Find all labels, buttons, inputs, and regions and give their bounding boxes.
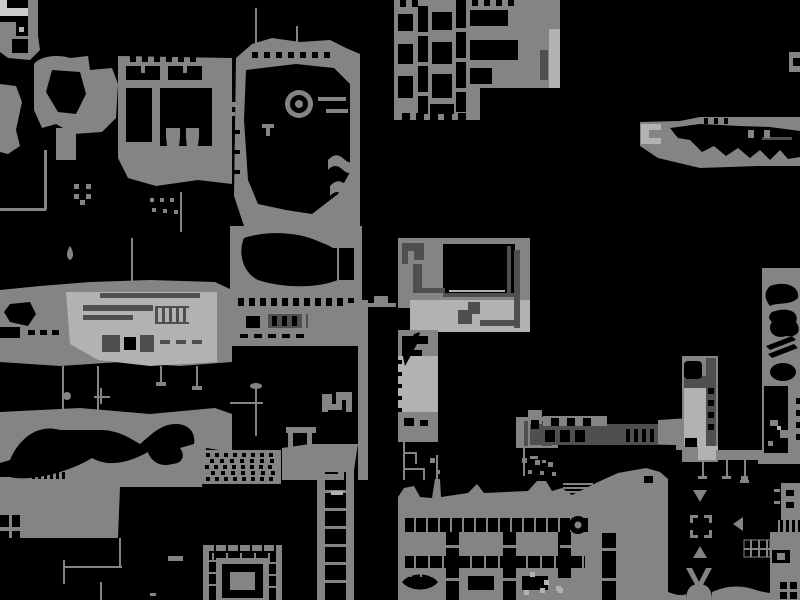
tick-mark	[86, 194, 91, 199]
map-shape	[12, 531, 20, 538]
tick-mark	[530, 572, 535, 577]
tick-mark	[486, 518, 488, 532]
map-shape	[616, 587, 686, 600]
map-shape	[398, 14, 413, 31]
tick-mark	[398, 384, 402, 388]
map-shape	[575, 522, 582, 529]
tick-mark	[786, 520, 789, 532]
map-shape	[470, 10, 508, 26]
tick-mark	[418, 62, 428, 66]
tick-mark	[260, 459, 264, 463]
tick-mark	[269, 477, 273, 481]
tick-mark	[260, 477, 264, 481]
map-shape	[337, 234, 339, 296]
tick-mark	[254, 553, 256, 562]
tick-mark	[400, 0, 406, 7]
tick-mark	[293, 298, 299, 306]
tick-mark	[470, 556, 472, 568]
tick-mark	[446, 545, 459, 548]
tick-mark	[456, 58, 466, 62]
tick-mark	[325, 562, 346, 565]
marker-frame	[690, 535, 698, 538]
tick-mark	[192, 340, 202, 344]
tick-mark	[56, 472, 59, 479]
tick-mark	[28, 330, 35, 335]
map-shape	[423, 468, 425, 480]
tick-mark	[179, 308, 183, 322]
tick-mark	[708, 412, 714, 418]
tick-mark	[418, 92, 428, 96]
marker-frame	[704, 535, 712, 538]
tick-mark	[560, 545, 573, 548]
map-shape	[540, 50, 548, 80]
tick-mark	[583, 418, 591, 426]
tick-mark	[582, 556, 584, 568]
tick-mark	[221, 471, 225, 475]
tick-mark	[304, 298, 310, 306]
tick-mark	[312, 52, 318, 58]
map-shape	[56, 128, 76, 160]
map-shape	[549, 29, 560, 88]
map-shape	[97, 366, 99, 410]
tick-mark	[226, 545, 228, 551]
map-shape	[100, 582, 102, 600]
tick-mark	[186, 308, 190, 322]
tick-mark	[224, 453, 228, 457]
map-shape	[432, 42, 452, 64]
map-shape	[560, 497, 594, 500]
marker-arrow-right	[733, 517, 743, 531]
tick-mark	[190, 56, 196, 62]
tick-mark	[300, 52, 306, 58]
map-shape	[10, 24, 14, 38]
tick-mark	[282, 298, 288, 306]
map-shape	[63, 560, 65, 584]
map-shape	[758, 453, 800, 464]
tick-mark	[302, 312, 306, 330]
tick-mark	[414, 518, 416, 532]
tick-mark	[154, 56, 160, 62]
tick-mark	[260, 453, 264, 457]
tick-mark	[474, 518, 476, 532]
map-shape	[503, 532, 516, 600]
map-shape	[684, 384, 706, 446]
map-shape	[684, 361, 702, 379]
tick-mark	[268, 465, 272, 469]
tick-mark	[38, 472, 41, 479]
tick-mark	[438, 518, 440, 532]
tick-mark	[242, 477, 246, 481]
tick-mark	[528, 470, 532, 474]
map-shape	[196, 366, 198, 386]
tick-mark	[259, 465, 263, 469]
tick-mark	[250, 545, 252, 551]
tick-mark	[240, 334, 248, 338]
tick-mark	[166, 56, 172, 62]
map-shape	[740, 480, 749, 483]
tick-mark	[442, 556, 444, 568]
tick-mark	[315, 298, 321, 306]
map-shape	[119, 538, 121, 568]
map-shape	[131, 238, 133, 282]
map-shape	[769, 310, 799, 337]
map-shape	[102, 335, 120, 352]
tick-mark	[206, 453, 210, 457]
tick-mark	[796, 422, 800, 428]
map-shape	[418, 6, 428, 114]
tick-mark	[172, 308, 176, 322]
tick-mark	[205, 465, 209, 469]
tick-mark	[444, 113, 452, 120]
map-shape	[0, 515, 9, 527]
tick-mark	[508, 0, 514, 6]
map-shape	[793, 58, 800, 66]
tick-mark	[176, 340, 186, 344]
map-shape	[266, 124, 270, 136]
map-shape	[0, 531, 9, 538]
map-shape	[405, 468, 425, 470]
tick-mark	[230, 459, 234, 463]
tick-mark	[398, 372, 402, 376]
map-shape	[64, 566, 122, 568]
map-shape	[644, 476, 653, 483]
tick-mark	[241, 465, 245, 469]
tick-mark	[416, 113, 424, 120]
tick-mark	[484, 0, 490, 6]
tick-mark	[498, 518, 500, 532]
tick-mark	[398, 408, 402, 412]
tick-mark	[764, 130, 770, 138]
tick-mark	[274, 545, 276, 551]
tick-mark	[567, 418, 575, 426]
tick-mark	[563, 491, 593, 493]
tick-mark	[174, 210, 178, 214]
map-shape	[470, 40, 518, 60]
tick-mark	[52, 330, 59, 335]
tick-mark	[40, 330, 47, 335]
tick-mark	[714, 118, 718, 124]
map-shape	[0, 208, 46, 211]
tick-mark	[254, 334, 262, 338]
tick-mark	[398, 396, 402, 400]
tick-mark	[165, 308, 169, 322]
map-shape	[456, 0, 466, 112]
tick-mark	[288, 52, 294, 58]
map-shape	[250, 383, 262, 389]
tick-mark	[503, 578, 516, 581]
tick-mark	[268, 553, 270, 562]
map-shape	[413, 264, 422, 292]
tick-mark	[50, 472, 53, 479]
table-platform	[286, 427, 316, 433]
tick-mark	[74, 184, 79, 189]
map-shape	[398, 76, 413, 98]
map-shape	[326, 109, 348, 113]
map-shape	[0, 84, 22, 154]
marker-arrow-bottom	[693, 546, 707, 558]
map-shape	[786, 490, 794, 496]
ladder-shaft	[312, 444, 358, 600]
map-shape	[12, 515, 20, 527]
tick-mark	[240, 553, 242, 562]
tick-mark	[708, 388, 714, 394]
tick-mark	[780, 582, 787, 589]
map-shape	[432, 74, 452, 98]
map-shape	[28, 0, 38, 36]
map-shape	[542, 460, 546, 463]
tick-mark	[796, 434, 800, 440]
map-shape	[774, 501, 780, 504]
map-shape	[777, 426, 781, 430]
tick-mark	[223, 465, 227, 469]
tick-mark	[790, 592, 797, 599]
tick-mark	[544, 580, 549, 585]
tick-mark	[310, 312, 314, 330]
tick-mark	[325, 544, 346, 547]
map-shape	[514, 250, 520, 328]
tick-mark	[748, 130, 754, 138]
tick-mark	[242, 453, 246, 457]
map-shape	[777, 553, 785, 560]
map-shape	[698, 446, 718, 460]
tick-mark	[546, 518, 548, 532]
map-shape	[374, 296, 388, 307]
tick-mark	[250, 459, 254, 463]
tick-mark	[240, 459, 244, 463]
tick-mark	[522, 518, 524, 532]
map-shape	[531, 420, 539, 429]
tick-mark	[238, 298, 244, 306]
marker-frame	[709, 515, 712, 523]
tick-mark	[708, 424, 714, 430]
tick-mark	[398, 360, 402, 364]
map-shape	[19, 27, 24, 32]
tick-mark	[267, 574, 277, 576]
tick-mark	[551, 418, 559, 426]
tick-mark	[556, 586, 561, 591]
map-shape	[288, 433, 293, 448]
tick-mark	[261, 471, 265, 475]
tick-mark	[724, 118, 728, 124]
map-shape	[770, 363, 796, 381]
tick-mark	[325, 508, 346, 511]
map-shape	[44, 150, 47, 210]
tick-mark	[472, 0, 478, 6]
map-shape	[774, 489, 780, 492]
map-shape	[246, 316, 260, 328]
tick-mark	[215, 477, 219, 481]
tick-mark	[142, 56, 148, 62]
map-shape	[468, 576, 494, 590]
tick-mark	[540, 471, 544, 475]
tick-mark	[152, 208, 156, 212]
map-shape	[744, 548, 770, 550]
map-shape	[741, 476, 748, 480]
tick-mark	[233, 453, 237, 457]
map-shape	[80, 200, 85, 205]
map-shape	[415, 452, 417, 464]
tick-mark	[163, 209, 167, 213]
tick-mark	[563, 495, 593, 497]
tick-mark	[426, 518, 428, 532]
tick-mark	[650, 429, 654, 442]
map-shape	[331, 491, 343, 495]
tick-mark	[251, 477, 255, 481]
map-shape	[398, 44, 413, 64]
tick-mark	[208, 584, 217, 586]
tick-mark	[430, 113, 438, 120]
map-shape	[413, 288, 445, 293]
map-shape	[507, 246, 511, 293]
marker-arrow-top	[693, 490, 707, 502]
tick-mark	[214, 465, 218, 469]
map-shape	[443, 244, 515, 293]
tick-mark	[410, 571, 412, 577]
tick-mark	[418, 32, 428, 36]
map-shape	[420, 420, 428, 426]
tick-mark	[249, 298, 255, 306]
tick-mark	[211, 471, 215, 475]
maze-bracket	[322, 392, 352, 412]
tick-mark	[215, 453, 219, 457]
tick-mark	[450, 518, 452, 532]
map-shape	[726, 460, 728, 476]
tick-mark	[462, 518, 464, 532]
map-shape	[141, 66, 145, 73]
tick-mark	[456, 28, 466, 32]
tick-mark	[540, 588, 545, 593]
tick-mark	[269, 453, 273, 457]
map-shape	[124, 337, 136, 350]
tick-mark	[271, 471, 275, 475]
tick-mark	[790, 582, 797, 589]
tick-mark	[282, 334, 290, 338]
map-shape	[12, 39, 28, 53]
tick-mark	[130, 56, 136, 62]
tick-mark	[602, 548, 616, 551]
map-shape	[192, 386, 202, 390]
map-shape	[602, 533, 616, 600]
map-shape	[430, 458, 435, 463]
tick-mark	[498, 556, 500, 568]
map-shape	[530, 456, 538, 459]
map-shape	[405, 518, 588, 532]
tick-mark	[402, 113, 410, 120]
tick-mark	[796, 398, 800, 404]
tick-mark	[264, 52, 270, 58]
tick-mark	[251, 471, 255, 475]
map-shape	[770, 420, 778, 426]
map-shape	[63, 392, 71, 400]
map-shape	[722, 476, 731, 479]
tick-mark	[503, 545, 516, 548]
tick-mark	[226, 553, 228, 562]
map-shape	[346, 303, 396, 307]
map-shape	[685, 438, 697, 447]
tick-mark	[458, 113, 466, 120]
tick-mark	[44, 472, 47, 479]
tick-mark	[325, 580, 346, 583]
tick-mark	[545, 430, 555, 442]
dome	[686, 584, 712, 600]
map-shape	[470, 68, 492, 84]
map-shape	[230, 112, 235, 116]
tick-mark	[325, 526, 346, 529]
tick-mark	[267, 562, 277, 564]
tick-mark	[704, 118, 708, 124]
map-shape	[740, 450, 750, 460]
tick-mark	[232, 465, 236, 469]
tick-mark	[558, 518, 560, 532]
map-shape	[404, 418, 414, 426]
tick-mark	[602, 578, 616, 581]
tick-mark	[526, 556, 528, 568]
map-shape	[62, 366, 64, 410]
map-shape	[7, 0, 29, 8]
tick-mark	[337, 298, 343, 306]
tick-mark	[270, 459, 274, 463]
tick-mark	[250, 465, 254, 469]
tick-mark	[292, 316, 297, 326]
tick-mark	[554, 556, 556, 568]
map-shape	[676, 444, 682, 450]
map-shape	[770, 532, 800, 600]
map-shape	[330, 248, 354, 280]
map-shape	[358, 300, 368, 480]
tick-mark	[158, 308, 162, 322]
tick-mark	[446, 578, 459, 581]
tick-mark	[220, 459, 224, 463]
tick-mark	[234, 130, 240, 134]
map-shape	[94, 396, 110, 398]
tick-mark	[563, 487, 593, 489]
map-shape	[83, 305, 153, 311]
tick-mark	[208, 560, 217, 562]
map-shape	[230, 102, 237, 107]
map-shape	[443, 293, 515, 297]
tick-mark	[534, 518, 536, 532]
map-shape	[168, 556, 183, 561]
tick-mark	[178, 56, 184, 62]
tick-mark	[276, 52, 282, 58]
tick-mark	[563, 483, 593, 485]
tick-mark	[234, 170, 240, 174]
tick-mark	[560, 430, 570, 442]
tick-mark	[548, 462, 553, 467]
map-shape	[449, 290, 505, 292]
tick-mark	[210, 459, 214, 463]
tick-mark	[241, 471, 245, 475]
map-shape	[318, 97, 346, 101]
tick-mark	[326, 298, 332, 306]
tick-mark	[160, 198, 164, 202]
map-shape	[0, 327, 20, 338]
map-shape	[432, 12, 452, 30]
tick-mark	[233, 477, 237, 481]
map-shape	[183, 66, 187, 73]
tick-mark	[575, 430, 585, 442]
tick-mark	[780, 520, 783, 532]
map-shape	[558, 532, 571, 578]
game-map-screen	[0, 0, 800, 600]
tick-mark	[86, 184, 91, 189]
tick-mark	[796, 410, 800, 416]
map-shape	[403, 442, 405, 480]
tick-mark	[208, 572, 217, 574]
tick-mark	[428, 556, 430, 568]
tick-mark	[414, 556, 416, 568]
tick-mark	[484, 556, 486, 568]
